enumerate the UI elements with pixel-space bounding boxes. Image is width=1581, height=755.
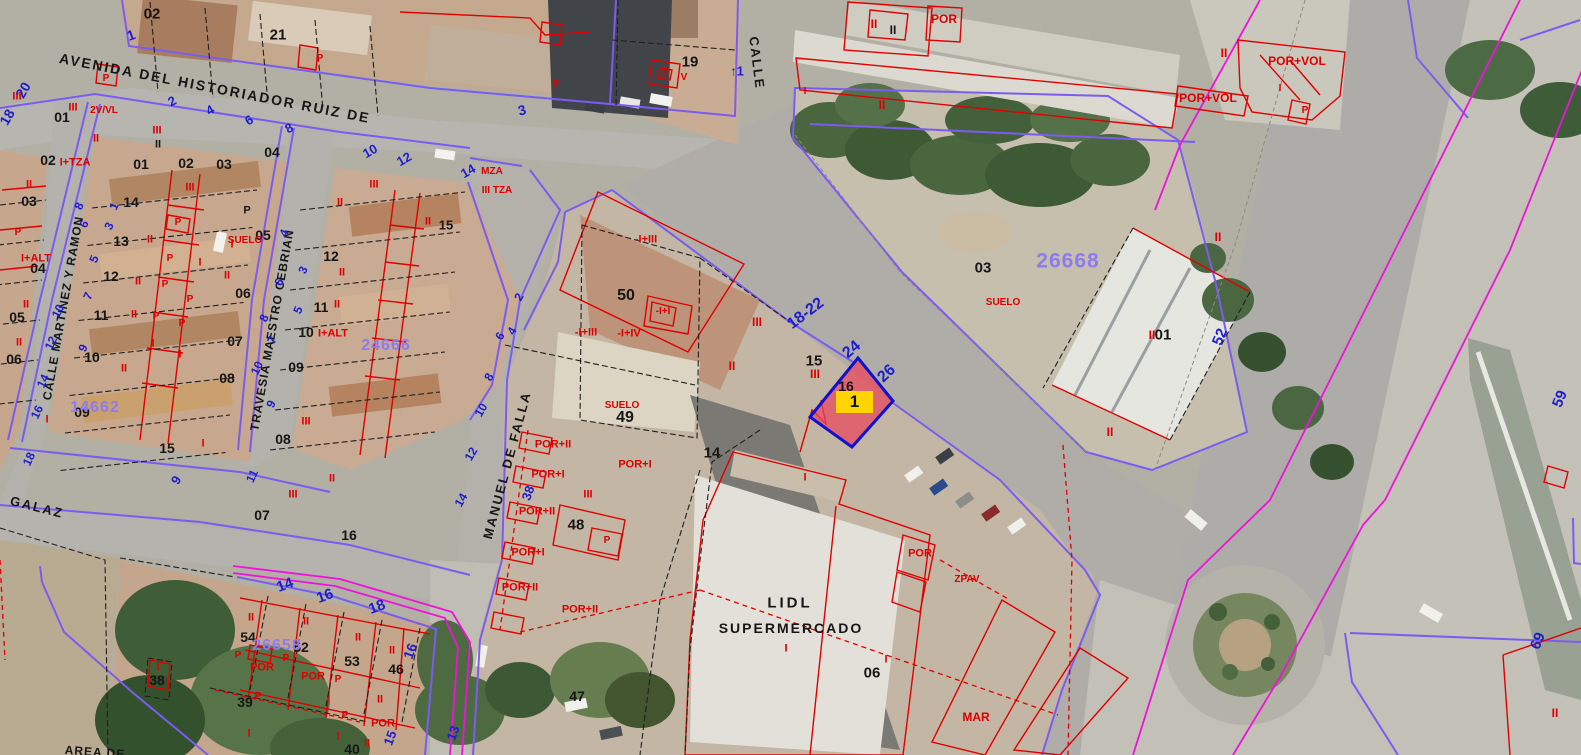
map-label: I bbox=[804, 87, 807, 97]
map-label: 1 bbox=[125, 27, 137, 43]
map-label: 16 bbox=[315, 586, 336, 606]
map-label: II bbox=[389, 646, 395, 657]
map-labels: AVENIDA DEL HISTORIADOR RUIZ DECALLECALL… bbox=[0, 0, 1581, 755]
map-label: P bbox=[175, 218, 182, 228]
map-label: P bbox=[243, 206, 250, 217]
map-label: II bbox=[93, 134, 99, 145]
map-label: AREA DE bbox=[64, 744, 125, 755]
map-label: 07 bbox=[254, 508, 270, 522]
map-label: V bbox=[681, 73, 688, 83]
map-label: -I+I bbox=[656, 307, 671, 317]
map-label: 19 bbox=[682, 55, 699, 70]
map-label: POR+II bbox=[502, 583, 538, 594]
map-label: 3 bbox=[102, 220, 116, 231]
map-label: II bbox=[1149, 329, 1156, 341]
map-label: 18 bbox=[21, 450, 38, 467]
map-label: 13 bbox=[444, 724, 461, 742]
map-label: II bbox=[879, 99, 886, 111]
map-label: LIDL bbox=[767, 596, 812, 611]
map-label: 11 bbox=[94, 308, 109, 322]
map-label: II bbox=[339, 268, 345, 279]
map-label: 6 bbox=[493, 330, 507, 342]
map-label: P bbox=[335, 675, 342, 685]
map-label: P bbox=[604, 536, 611, 546]
map-label: SUELO bbox=[605, 401, 639, 411]
map-label: II bbox=[303, 617, 309, 628]
map-label: 53 bbox=[344, 654, 360, 668]
map-label: III bbox=[185, 183, 194, 194]
map-label: -I+IV bbox=[617, 329, 641, 340]
map-label: 02 bbox=[40, 153, 56, 167]
map-label: 47 bbox=[569, 689, 585, 703]
map-label: 12 bbox=[323, 249, 339, 263]
map-label: 21 bbox=[270, 28, 287, 43]
map-label: 4 bbox=[204, 103, 217, 118]
map-label: II bbox=[1552, 707, 1559, 719]
map-label: II bbox=[26, 180, 32, 191]
map-label: II bbox=[155, 140, 161, 151]
map-label: I bbox=[336, 732, 339, 743]
map-label: POR+II bbox=[562, 605, 598, 616]
map-label: POR+II bbox=[519, 507, 555, 518]
map-label: 9 bbox=[169, 474, 184, 487]
map-label: 39 bbox=[237, 695, 253, 709]
map-label: POR+I bbox=[531, 470, 564, 481]
map-label: 5 bbox=[87, 253, 101, 264]
map-label: -I+III bbox=[575, 328, 597, 339]
map-label: II bbox=[890, 24, 897, 36]
map-label: II bbox=[135, 277, 141, 288]
map-label: ZPAV bbox=[954, 575, 979, 585]
map-label: II bbox=[329, 474, 335, 485]
map-label: 2 bbox=[512, 291, 526, 303]
map-label: P bbox=[167, 254, 174, 264]
map-label: P bbox=[179, 319, 186, 329]
map-label: 48 bbox=[568, 518, 585, 533]
map-label: POR bbox=[301, 672, 325, 683]
map-label: I+TZA bbox=[60, 158, 91, 169]
map-label: 2V/VL bbox=[90, 106, 118, 116]
map-label: 03 bbox=[21, 194, 37, 208]
map-label: II bbox=[131, 310, 137, 321]
map-label: I bbox=[247, 729, 250, 740]
map-label: 1 bbox=[107, 200, 121, 211]
map-label: 50 bbox=[617, 288, 635, 304]
map-label: 15 bbox=[439, 219, 453, 232]
map-label: 16 bbox=[29, 403, 46, 420]
map-label: 13 bbox=[113, 234, 129, 248]
map-label: III bbox=[752, 316, 762, 328]
map-label: II bbox=[377, 695, 383, 706]
map-label: POR+VOL bbox=[1268, 55, 1326, 67]
map-label: 59 bbox=[1550, 388, 1570, 409]
map-label: 18 bbox=[367, 597, 388, 617]
map-label: 14 bbox=[704, 446, 721, 461]
map-label: 06 bbox=[864, 666, 881, 681]
map-label: I bbox=[178, 350, 181, 361]
map-label: P bbox=[283, 654, 290, 664]
map-label: 08 bbox=[219, 371, 235, 385]
map-label: 08 bbox=[275, 432, 291, 446]
map-label: P bbox=[235, 651, 242, 661]
map-label: 12 bbox=[103, 269, 119, 283]
map-label: P bbox=[342, 711, 349, 721]
map-label: 14662 bbox=[70, 400, 120, 416]
map-label: 69 bbox=[1528, 630, 1548, 651]
map-label: 24666 bbox=[361, 338, 411, 354]
map-label: 07 bbox=[227, 334, 243, 348]
map-label: III bbox=[301, 417, 310, 428]
map-label: 9 bbox=[76, 342, 90, 353]
map-label: 14 bbox=[458, 162, 477, 180]
map-label: P bbox=[553, 80, 560, 90]
cadastral-map-viewport[interactable]: AVENIDA DEL HISTORIADOR RUIZ DECALLECALL… bbox=[0, 0, 1581, 755]
map-label: P bbox=[153, 312, 160, 322]
map-label: 03 bbox=[216, 157, 232, 171]
map-label: P bbox=[1302, 106, 1309, 116]
map-label: II bbox=[23, 300, 29, 311]
map-label: P bbox=[255, 692, 262, 702]
map-label: 26 bbox=[875, 362, 899, 386]
map-label: II bbox=[425, 217, 431, 228]
map-label: II bbox=[355, 633, 361, 644]
map-label: 9 bbox=[264, 398, 278, 409]
map-label: 24 bbox=[840, 338, 864, 362]
map-label: 49 bbox=[616, 410, 634, 426]
map-label: 46 bbox=[388, 662, 404, 676]
map-label: II bbox=[1107, 426, 1114, 438]
map-label: II bbox=[337, 198, 343, 209]
map-label: 5 bbox=[291, 304, 305, 315]
map-label: I bbox=[156, 663, 159, 674]
map-label: 14 bbox=[275, 575, 296, 595]
map-label: POR+II bbox=[535, 440, 571, 451]
map-label: I+ALT bbox=[318, 329, 348, 340]
map-label: 06 bbox=[6, 352, 22, 366]
map-label: I bbox=[151, 339, 154, 350]
map-label: II bbox=[1215, 231, 1222, 243]
map-label: 8 bbox=[72, 200, 86, 211]
map-label: II bbox=[16, 338, 22, 349]
map-label: II bbox=[248, 613, 254, 624]
map-label: 01 bbox=[133, 157, 149, 171]
map-label: CALLE bbox=[747, 36, 766, 91]
map-label: SUPERMERCADO bbox=[719, 621, 864, 635]
map-label: 06 bbox=[235, 286, 251, 300]
map-label: MZA bbox=[481, 167, 503, 177]
map-label: SUELO bbox=[986, 298, 1020, 308]
map-label: III bbox=[288, 490, 297, 501]
map-label: I bbox=[803, 473, 806, 484]
map-label: 04 bbox=[264, 145, 280, 159]
map-label: I bbox=[784, 644, 787, 655]
map-label: 03 bbox=[975, 261, 992, 276]
map-label: MAR bbox=[962, 711, 989, 723]
map-label: POR bbox=[908, 549, 932, 560]
map-label: P bbox=[15, 228, 22, 238]
map-label: 09 bbox=[288, 360, 304, 374]
map-label: 3 bbox=[516, 102, 527, 118]
map-label: 11 bbox=[314, 300, 329, 314]
map-label: POR bbox=[371, 719, 395, 730]
map-label: 18 bbox=[0, 107, 17, 127]
map-label: II bbox=[334, 300, 340, 311]
map-label: 18-22 bbox=[785, 295, 827, 332]
map-label: 38 bbox=[149, 673, 165, 687]
map-label: 10 bbox=[298, 325, 314, 339]
map-label: 12 bbox=[394, 150, 413, 168]
map-label: 26658 bbox=[252, 638, 302, 654]
map-label: 14 bbox=[123, 195, 139, 209]
map-label: III bbox=[152, 126, 161, 137]
map-label: II bbox=[147, 235, 153, 246]
map-label: 15 bbox=[381, 729, 398, 747]
map-label: 16 bbox=[401, 641, 419, 660]
map-label: I+ALT bbox=[21, 254, 51, 265]
map-label: 12 bbox=[462, 445, 479, 463]
map-label: II bbox=[1221, 47, 1228, 59]
map-label: 02 bbox=[178, 156, 194, 170]
map-label: 10 bbox=[360, 142, 379, 160]
map-label: I bbox=[1279, 84, 1282, 94]
map-label: 11 bbox=[244, 468, 260, 485]
map-label: II bbox=[224, 271, 230, 282]
map-label: POR+I bbox=[618, 460, 651, 471]
map-label: 14 bbox=[452, 491, 469, 509]
map-label: III bbox=[68, 103, 77, 114]
map-label: I bbox=[45, 415, 48, 426]
map-label: 8 bbox=[283, 121, 296, 136]
map-label: II bbox=[729, 360, 736, 372]
map-label: P bbox=[664, 68, 671, 78]
map-label: I bbox=[198, 258, 201, 269]
map-label: 15 bbox=[159, 441, 175, 455]
map-label: -I+III bbox=[635, 235, 657, 246]
map-label: P bbox=[187, 295, 194, 305]
map-label: 3 bbox=[296, 264, 310, 275]
map-label: POR+I bbox=[511, 548, 544, 559]
map-label: MANUEL DE FALLA bbox=[481, 390, 533, 541]
map-label: III bbox=[583, 490, 592, 501]
map-label: II bbox=[121, 364, 127, 375]
map-label: 01 bbox=[1155, 328, 1172, 343]
map-label: 26668 bbox=[1036, 251, 1099, 272]
map-label: POR bbox=[931, 13, 957, 25]
map-label: 40 bbox=[344, 742, 360, 755]
map-label: P bbox=[317, 54, 324, 64]
map-label: P bbox=[103, 74, 110, 84]
map-label: 7 bbox=[81, 290, 95, 301]
map-label: GALAZ bbox=[9, 494, 65, 520]
map-label: III bbox=[810, 368, 820, 380]
map-label: II bbox=[364, 739, 370, 750]
map-label: I bbox=[884, 655, 887, 666]
map-label: III bbox=[369, 180, 378, 191]
map-label: 02 bbox=[144, 7, 161, 22]
map-label: POR+VOL bbox=[1179, 92, 1237, 104]
map-label: P bbox=[162, 280, 169, 290]
map-label: ↑1 bbox=[730, 65, 744, 78]
map-label: 05 bbox=[9, 310, 25, 324]
map-label: 38 bbox=[519, 484, 536, 502]
map-label: 6 bbox=[243, 113, 256, 128]
map-label: II bbox=[871, 18, 878, 30]
map-label: POR bbox=[250, 663, 274, 674]
map-label: 52 bbox=[1210, 326, 1230, 347]
map-label: 8 bbox=[482, 371, 496, 383]
map-label: 16 bbox=[341, 528, 357, 542]
map-label: 10 bbox=[472, 401, 489, 419]
map-label: I bbox=[230, 240, 233, 251]
map-label: III TZA bbox=[482, 186, 513, 196]
selected-parcel-tag[interactable]: 1 bbox=[836, 391, 873, 413]
map-label: I bbox=[201, 439, 204, 450]
map-label: 2 bbox=[166, 94, 179, 109]
